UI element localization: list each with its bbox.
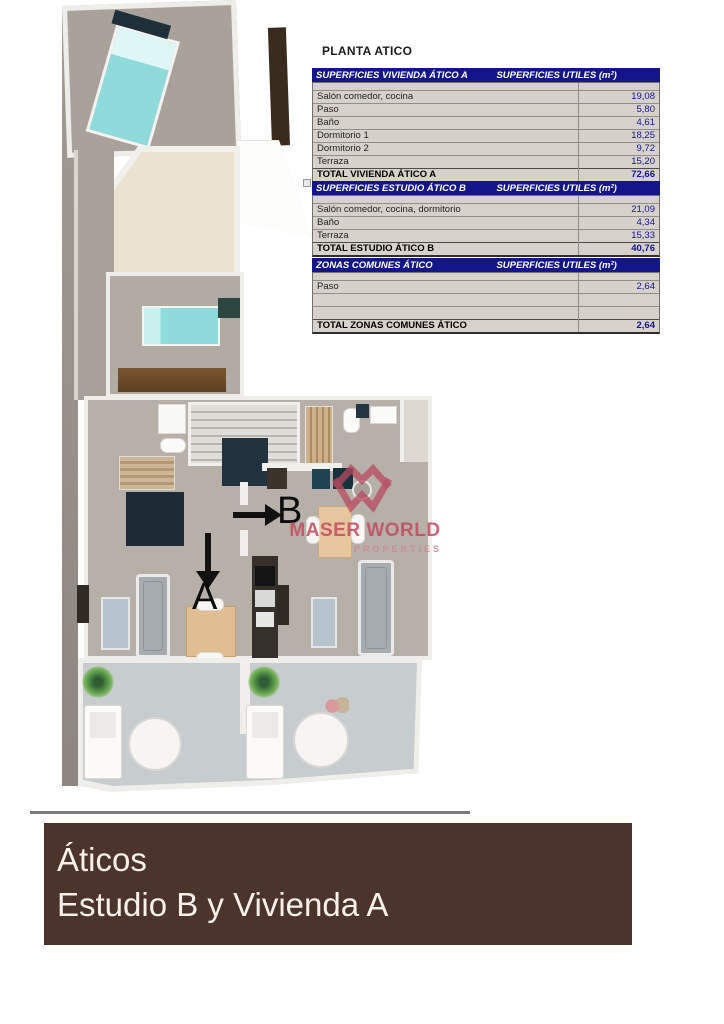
- arrow-b-shaft: [233, 512, 267, 518]
- bathroom-sink-left: [158, 404, 186, 434]
- terrace-a-floor: [112, 152, 234, 274]
- round-table-right: [293, 712, 349, 768]
- table-total-row: TOTAL VIVIENDA ÁTICO A72,66: [313, 168, 659, 181]
- row-value: 2,64: [579, 320, 659, 332]
- table-body: Salón comedor, cocina, dormitorio21,09Ba…: [312, 195, 660, 257]
- row-value: [579, 307, 659, 319]
- rug-living-right: [311, 597, 337, 648]
- table-row: Baño4,61: [313, 116, 659, 129]
- row-value: 9,72: [579, 143, 659, 155]
- table-vivienda-a: SUPERFICIES VIVIENDA ÁTICO A SUPERFICIES…: [312, 68, 660, 183]
- table-body: Salón comedor, cocina19,08Paso5,80Baño4,…: [312, 82, 660, 183]
- row-value: 21,09: [579, 204, 659, 216]
- plant-right: [248, 666, 280, 698]
- table-row: Dormitorio 118,25: [313, 129, 659, 142]
- table-header: SUPERFICIES VIVIENDA ÁTICO A SUPERFICIES…: [312, 68, 660, 82]
- outline-marker: [303, 179, 311, 187]
- row-value: 72,66: [579, 169, 659, 181]
- table-header-right: SUPERFICIES UTILES (m²): [496, 260, 616, 271]
- bedroom-top-floor: [62, 0, 241, 158]
- table-row: [313, 306, 659, 319]
- table-header: SUPERFICIES ESTUDIO ÁTICO B SUPERFICIES …: [312, 181, 660, 195]
- kitchen-counter-white: [255, 590, 275, 607]
- watermark-tagline: PROPERTIES: [354, 544, 442, 554]
- row-value: 19,08: [579, 91, 659, 103]
- terrace-a-walls: [106, 146, 240, 276]
- double-bed: [86, 24, 180, 150]
- row-value: 15,20: [579, 156, 659, 168]
- banner-line2: Estudio B y Vivienda A: [44, 882, 632, 927]
- row-label: Paso: [313, 281, 579, 293]
- table-estudio-b: SUPERFICIES ESTUDIO ÁTICO B SUPERFICIES …: [312, 181, 660, 257]
- row-label: Salón comedor, cocina: [313, 91, 579, 103]
- row-value: 2,64: [579, 281, 659, 293]
- row-value: [579, 294, 659, 306]
- plant-left: [82, 666, 114, 698]
- row-label: Baño: [313, 117, 579, 129]
- table-row: [313, 293, 659, 306]
- adjacent-roof: [236, 140, 314, 237]
- kitchen-sink: [256, 612, 274, 627]
- bedroom-rug: [119, 456, 175, 490]
- sofa-right: [358, 560, 394, 656]
- row-label: Dormitorio 1: [313, 130, 579, 142]
- table-row: Terraza15,20: [313, 155, 659, 168]
- cooktop: [255, 566, 275, 586]
- bed-headboard: [111, 10, 171, 39]
- bathroom-sink: [370, 406, 397, 424]
- rug-living-left: [101, 597, 130, 650]
- row-label: TOTAL ESTUDIO ÁTICO B: [313, 243, 579, 255]
- row-label: Paso: [313, 104, 579, 116]
- table-header-left: SUPERFICIES ESTUDIO ÁTICO B: [312, 183, 466, 194]
- row-label: TOTAL ZONAS COMUNES ÁTICO: [313, 320, 579, 332]
- table-total-row: TOTAL ESTUDIO ÁTICO B40,76: [313, 242, 659, 255]
- row-value: 4,34: [579, 217, 659, 229]
- closet-strip: [118, 368, 226, 392]
- row-value: 40,76: [579, 243, 659, 255]
- table-header: ZONAS COMUNES ÁTICO SUPERFICIES UTILES (…: [312, 258, 660, 272]
- table-spacer: [313, 273, 659, 280]
- sideboard-left: [77, 585, 89, 623]
- table-zonas-comunes: ZONAS COMUNES ÁTICO SUPERFICIES UTILES (…: [312, 258, 660, 334]
- outdoor-sofa-right: [246, 705, 284, 779]
- bathroom-cabinet: [356, 404, 369, 418]
- wardrobe: [268, 27, 290, 146]
- doorway-wall-lower: [240, 530, 248, 556]
- table-row: Terraza15,33: [313, 229, 659, 242]
- plan-shadow-line: [30, 811, 470, 814]
- table-header-right: SUPERFICIES UTILES (m²): [496, 183, 616, 194]
- maser-world-logo-icon: [330, 462, 394, 514]
- row-label: Salón comedor, cocina, dormitorio: [313, 204, 579, 216]
- table-row: Dormitorio 29,72: [313, 142, 659, 155]
- row-label: Baño: [313, 217, 579, 229]
- table-spacer: [313, 196, 659, 203]
- row-value: 4,61: [579, 117, 659, 129]
- page-title: PLANTA ATICO: [322, 44, 412, 58]
- table-row: Paso2,64: [313, 280, 659, 293]
- table-spacer: [313, 83, 659, 90]
- toilet-left: [160, 438, 186, 453]
- stair-landing-dark: [222, 438, 268, 486]
- footer-banner: Áticos Estudio B y Vivienda A: [44, 823, 632, 945]
- single-bed: [142, 306, 220, 346]
- table-header-right: SUPERFICIES UTILES (m²): [496, 70, 616, 81]
- watermark: MASER WORLD PROPERTIES: [280, 462, 450, 566]
- table-row: Salón comedor, cocina, dormitorio21,09: [313, 203, 659, 216]
- row-label: [313, 307, 579, 319]
- row-label: Terraza: [313, 230, 579, 242]
- sofa-left: [136, 574, 170, 658]
- row-label: [313, 294, 579, 306]
- table-header-left: ZONAS COMUNES ÁTICO: [312, 260, 433, 271]
- table-row: Salón comedor, cocina19,08: [313, 90, 659, 103]
- banner-line1: Áticos: [44, 823, 632, 882]
- sideboard-right: [277, 585, 289, 625]
- hall-runner-rug: [305, 406, 333, 466]
- table-row: Baño4,34: [313, 216, 659, 229]
- round-table-left: [128, 717, 182, 771]
- arrow-a-shaft: [205, 533, 211, 573]
- watermark-brand-text: MASER WORLD: [280, 520, 450, 542]
- outdoor-sofa-left: [84, 705, 122, 779]
- row-value: 5,80: [579, 104, 659, 116]
- row-label: TOTAL VIVIENDA ÁTICO A: [313, 169, 579, 181]
- row-label: Terraza: [313, 156, 579, 168]
- table-row: Paso5,80: [313, 103, 659, 116]
- dark-furniture-block: [126, 492, 184, 546]
- page: { "title": "PLANTA ATICO", "tables": [ {…: [0, 0, 724, 1024]
- entry-nook-floor: [400, 400, 428, 462]
- table-body: Paso2,64TOTAL ZONAS COMUNES ÁTICO2,64: [312, 272, 660, 334]
- row-value: 15,33: [579, 230, 659, 242]
- row-value: 18,25: [579, 130, 659, 142]
- table-header-left: SUPERFICIES VIVIENDA ÁTICO A: [312, 70, 468, 81]
- unit-a-label: A: [192, 576, 217, 619]
- doorway-wall-upper: [240, 482, 248, 505]
- terrace-decor: [325, 697, 349, 715]
- table-total-row: TOTAL ZONAS COMUNES ÁTICO2,64: [313, 319, 659, 332]
- row-label: Dormitorio 2: [313, 143, 579, 155]
- single-bed-headboard: [218, 298, 240, 318]
